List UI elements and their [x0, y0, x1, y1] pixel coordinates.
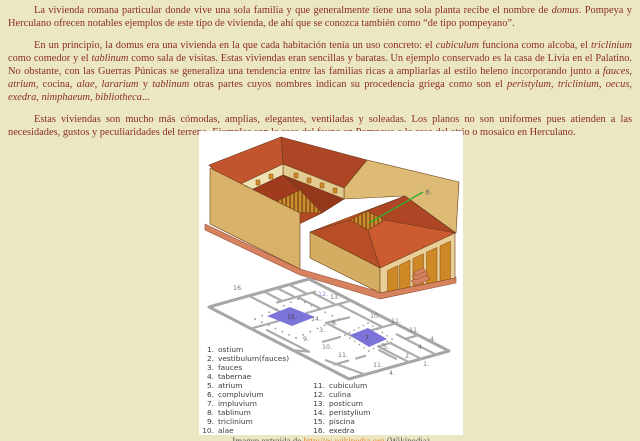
callout-label: 6.	[426, 189, 433, 197]
domus-figure: 6. 16.12.13.15.14.8.3.10.11.11.4.4.9.10.…	[199, 131, 463, 435]
legend-item-label: culina	[329, 390, 351, 399]
text-run: En un principio, la domus era una vivien…	[34, 40, 436, 51]
column-dot	[372, 325, 374, 327]
legend-item-number: 11.	[313, 381, 325, 390]
caption-prefix: Imagen extraída de	[232, 436, 303, 441]
text-run: , cocina,	[36, 79, 77, 90]
legend-item: 6.compluvium	[202, 390, 289, 399]
column-dot	[358, 327, 360, 329]
column-dot	[331, 315, 333, 317]
plan-room-number: 11.	[391, 318, 401, 325]
legend-item-label: atrium	[218, 381, 242, 390]
legend-item-label: ostium	[218, 345, 243, 354]
column-dot	[290, 301, 292, 303]
column-dot	[338, 318, 340, 320]
legend-item: 15.piscina	[313, 417, 370, 426]
figure-caption: Imagen extraída de http://es.wikipedia.o…	[199, 436, 463, 441]
text-run: ,	[629, 79, 632, 90]
column-dot	[391, 338, 393, 340]
column-dot	[295, 337, 297, 339]
legend-item-label: cubiculum	[329, 381, 367, 390]
text-run: triclinium	[558, 79, 599, 90]
plan-room-number: 2.	[405, 353, 411, 360]
legend-item: 2.vestibulum(fauces)	[202, 354, 289, 363]
column-dot	[276, 308, 278, 310]
plan-room-number: 11.	[373, 362, 383, 369]
text-run: exedra	[8, 92, 36, 103]
paragraph-domus-intro: La vivienda romana particular donde vive…	[8, 4, 632, 30]
legend-item: 1.ostium	[202, 345, 289, 354]
column-dot	[268, 324, 270, 326]
text-run: triclinium	[591, 40, 632, 51]
legend-item-number: 9.	[202, 417, 214, 426]
legend-item-number: 5.	[202, 381, 214, 390]
column-dot	[281, 331, 283, 333]
text-run: lararium	[101, 79, 138, 90]
legend-column-2: 11.cubiculum12.culina13.posticum14.peris…	[313, 381, 370, 435]
text-run: tablinum	[91, 53, 128, 64]
column-dot	[368, 350, 370, 352]
text-run: otras partes cuyos nombres indican su pr…	[189, 79, 507, 90]
text-run: peristylum	[507, 79, 551, 90]
legend-item-number: 13.	[313, 399, 325, 408]
column-dot	[349, 332, 351, 334]
caption-suffix: (Wikipedia)	[384, 436, 429, 441]
column-dot	[363, 325, 365, 327]
legend-item-number: 4.	[202, 372, 214, 381]
legend-item-label: posticum	[329, 399, 363, 408]
plan-room-number: 4.	[418, 344, 424, 351]
legend-item-label: compluvium	[218, 390, 264, 399]
legend-item: 10.alae	[202, 426, 289, 435]
legend-item-label: triclinium	[218, 417, 253, 426]
column-dot	[261, 321, 263, 323]
text-run: y	[138, 79, 152, 90]
column-dot	[367, 322, 369, 324]
text-run: funciona como alcoba, el	[479, 40, 591, 51]
text-run: como comedor y el	[8, 53, 91, 64]
legend-column-1: 1.ostium2.vestibulum(fauces)3.fauces4.ta…	[202, 345, 289, 435]
legend-item-label: vestibulum(fauces)	[218, 354, 289, 363]
text-run: ,	[551, 79, 558, 90]
column-dot	[297, 298, 299, 300]
column-dot	[254, 318, 256, 320]
legend-item-label: peristylium	[329, 408, 370, 417]
plan-room-number: 16.	[233, 285, 243, 292]
column-dot	[288, 334, 290, 336]
plan-room-number: 8.	[332, 320, 338, 327]
article-text: La vivienda romana particular donde vive…	[0, 4, 640, 148]
plan-room-number: 3.	[319, 327, 325, 334]
column-dot	[324, 311, 326, 313]
legend-item-number: 10.	[202, 426, 214, 435]
plan-room-number: 14.	[311, 316, 321, 323]
column-dot	[386, 335, 388, 337]
legend-item: 14.peristylium	[313, 408, 370, 417]
legend-item-label: tabernae	[218, 372, 251, 381]
column-dot	[354, 341, 356, 343]
legend-item: 4.tabernae	[202, 372, 289, 381]
column-dot	[387, 341, 389, 343]
plan-room-number: 12.	[318, 291, 328, 298]
text-run: oecus	[606, 79, 630, 90]
plan-room-number: 10.	[322, 344, 332, 351]
legend-item-label: impluvium	[218, 399, 257, 408]
column-dot	[268, 311, 270, 313]
legend-item: 16.exedra	[313, 426, 370, 435]
legend-item: 13.posticum	[313, 399, 370, 408]
column-dot	[324, 324, 326, 326]
legend-item-label: exedra	[329, 426, 354, 435]
legend-item-number: 2.	[202, 354, 214, 363]
column-dot	[359, 344, 361, 346]
legend-item: 8.tablinum	[202, 408, 289, 417]
plan-room-number: 4.	[430, 336, 436, 343]
column-dot	[275, 328, 277, 330]
column-dot	[283, 305, 285, 307]
paragraph-domus-history: En un principio, la domus era una vivien…	[8, 39, 632, 104]
column-dot	[318, 308, 320, 310]
plan-room-number: 11.	[409, 327, 419, 334]
plan-room-number: 5.	[383, 344, 389, 351]
legend-item-number: 1.	[202, 345, 214, 354]
text-run: alae	[77, 79, 95, 90]
plan-room-number: 11.	[338, 352, 348, 359]
column-dot	[304, 301, 306, 303]
plan-room-number: 1.	[423, 361, 429, 368]
plan-room-number: 13.	[330, 294, 340, 301]
plan-room-number: 7.	[365, 335, 371, 342]
column-dot	[377, 329, 379, 331]
page: La vivienda romana particular donde vive…	[0, 0, 640, 441]
text-run: fauces	[603, 66, 630, 77]
legend-item: 5.atrium	[202, 381, 289, 390]
column-dot	[382, 332, 384, 334]
legend-item-label: alae	[218, 426, 234, 435]
column-dot	[349, 337, 351, 339]
legend-item: 11.cubiculum	[313, 381, 370, 390]
legend-item-number: 7.	[202, 399, 214, 408]
column-dot	[261, 315, 263, 317]
legend-item: 7.impluvium	[202, 399, 289, 408]
text-run: atrium	[8, 79, 36, 90]
text-run: cubiculum	[436, 40, 479, 51]
legend-item-number: 3.	[202, 363, 214, 372]
text-run: ,	[629, 66, 632, 77]
column-dot	[377, 345, 379, 347]
plan-room-number: 4.	[389, 370, 395, 377]
house-isometric	[205, 137, 459, 299]
legend-item-label: piscina	[329, 417, 355, 426]
column-dot	[353, 329, 355, 331]
column-dot	[309, 331, 311, 333]
text-run: bibliotheca	[95, 92, 142, 103]
text-run: nimphaeum	[41, 92, 89, 103]
text-run: ...	[142, 92, 150, 103]
text-run: domus	[552, 5, 579, 16]
plan-room-number: 10.	[370, 313, 380, 320]
legend-item-number: 12.	[313, 390, 325, 399]
text-run: tablinum	[152, 79, 189, 90]
column-dot	[311, 305, 313, 307]
legend-item-number: 6.	[202, 390, 214, 399]
plan-room-number: 15.	[287, 314, 297, 321]
plan-room-number: 9.	[303, 336, 309, 343]
text-run: La vivienda romana particular donde vive…	[34, 5, 552, 16]
legend-item-label: fauces	[218, 363, 242, 372]
caption-link[interactable]: http://es.wikipedia.org	[304, 436, 385, 441]
column-dot	[363, 347, 365, 349]
column-dot	[373, 348, 375, 350]
text-run: ,	[599, 79, 606, 90]
legend-item: 3.fauces	[202, 363, 289, 372]
legend-item-label: tablinum	[218, 408, 251, 417]
legend-item: 9.triclinium	[202, 417, 289, 426]
legend-item-number: 8.	[202, 408, 214, 417]
legend-item: 12.culina	[313, 390, 370, 399]
legend-item-number: 14.	[313, 408, 325, 417]
legend-item-number: 16.	[313, 426, 325, 435]
column-dot	[344, 334, 346, 336]
legend-item-number: 15.	[313, 417, 325, 426]
